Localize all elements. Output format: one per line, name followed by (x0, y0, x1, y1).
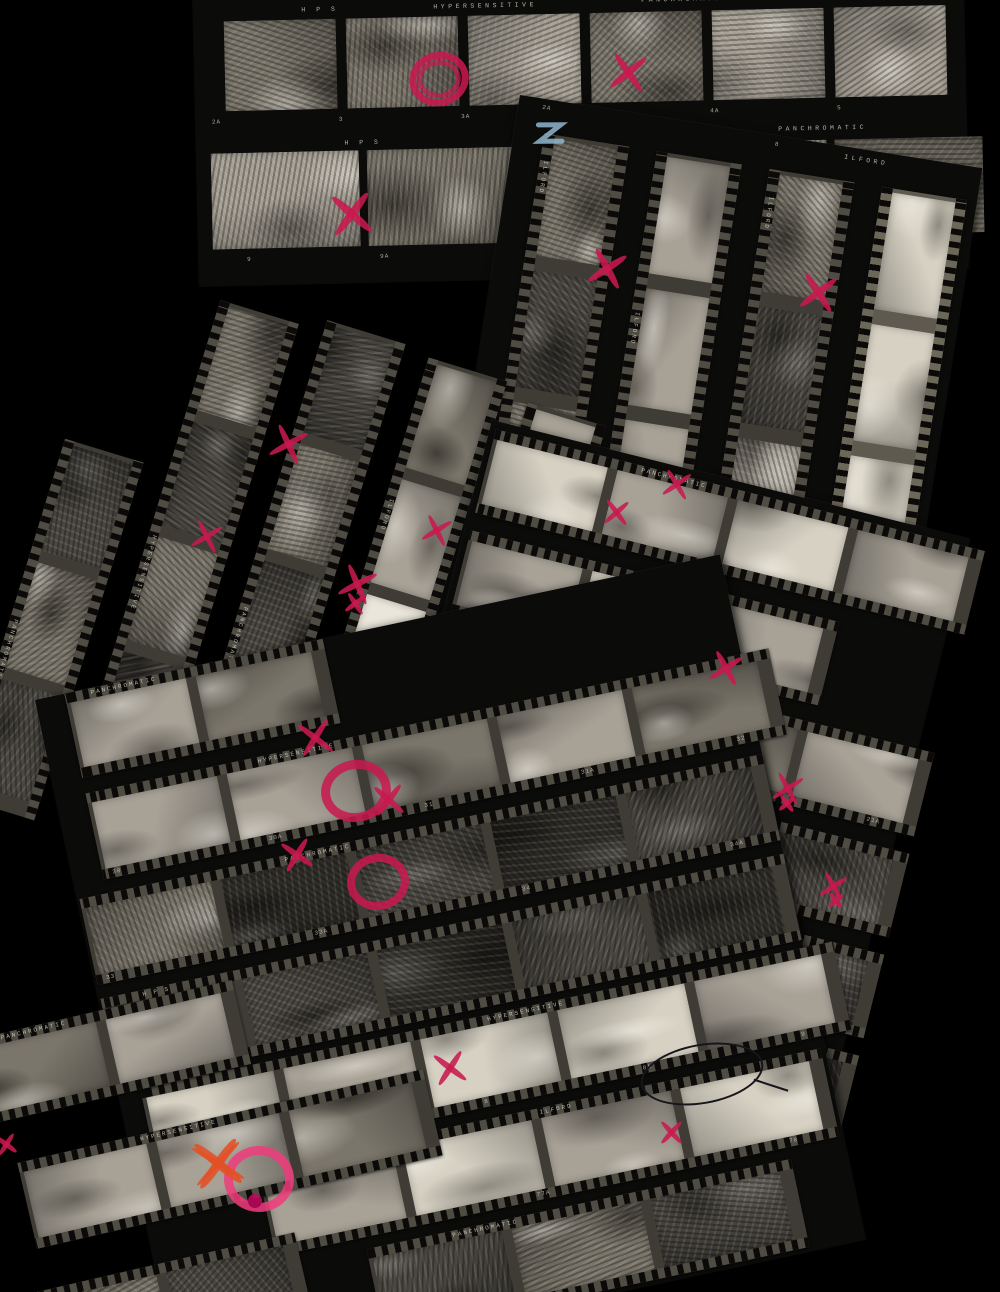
contact-sheet-bottom-left: PANCHROMATICHYPERSENSITIVE (0, 921, 471, 1292)
frame-number: 3 (339, 117, 344, 123)
film-stock-label: H P S (344, 140, 381, 147)
film-strip: PANCHROMATIC (0, 980, 251, 1123)
x-stroke (662, 472, 692, 495)
x-mark (277, 835, 317, 875)
x-mark (827, 891, 845, 909)
film-stock-label: HYPERSENSITIVE (433, 2, 537, 11)
x-mark (777, 793, 797, 813)
x-stroke (268, 431, 308, 457)
x-stroke (708, 655, 743, 681)
film-frame (197, 307, 288, 428)
frame-number: 4A (710, 108, 719, 114)
film-strip (33, 1233, 313, 1292)
xo-x-mark (188, 1133, 249, 1194)
film-frame (224, 19, 338, 112)
film-frame (303, 327, 394, 450)
x-stroke (285, 837, 310, 873)
film-strip (220, 5, 962, 112)
film-frame (41, 445, 132, 568)
x-mark (605, 49, 650, 94)
edge-frame-number: 9 (801, 1031, 807, 1038)
x-mark (602, 497, 633, 528)
film-frame (367, 147, 517, 246)
x-stroke (798, 276, 838, 309)
x-mark (342, 590, 367, 615)
x-mark (659, 466, 695, 502)
frame-number: 2A (212, 119, 221, 125)
circle-dot (248, 1194, 262, 1208)
x-mark (659, 1119, 685, 1145)
x-stroke (437, 1049, 464, 1086)
film-stock-label: PANCHROMATIC (778, 125, 867, 134)
x-mark (795, 269, 841, 315)
frame-number: 9 (247, 257, 252, 263)
frame-number: 2A (542, 105, 552, 112)
x-stroke (0, 1132, 15, 1155)
film-frame (127, 536, 218, 657)
film-frame (833, 5, 947, 98)
frame-number: 3A (461, 114, 470, 120)
x-stroke (586, 253, 627, 283)
x-stroke (608, 55, 647, 89)
frame-number: 8 (774, 142, 779, 149)
x-mark (429, 1047, 471, 1089)
blue-scribble-mark (530, 114, 569, 153)
x-stroke (301, 719, 329, 758)
contact-sheet-collage: H P SHYPERSENSITIVEPANCHROMATICILFORDH P… (0, 0, 1000, 1292)
x-stroke (344, 594, 367, 613)
film-frame (6, 562, 97, 685)
film-frame (712, 8, 826, 101)
edge-frame-number: 8 (484, 1098, 490, 1105)
film-stock-label: PANCHROMATIC (641, 0, 730, 4)
x-mark (293, 716, 337, 760)
circle-inner-stroke (415, 58, 463, 100)
film-stock-label: H P S (301, 7, 338, 14)
x-mark (327, 189, 378, 240)
blue-scribble-path (530, 114, 569, 153)
frame-number: 5 (837, 105, 842, 111)
frame-number: 9A (380, 254, 389, 260)
film-stock-label: ILFORD (844, 155, 889, 168)
film-frame (468, 13, 582, 106)
